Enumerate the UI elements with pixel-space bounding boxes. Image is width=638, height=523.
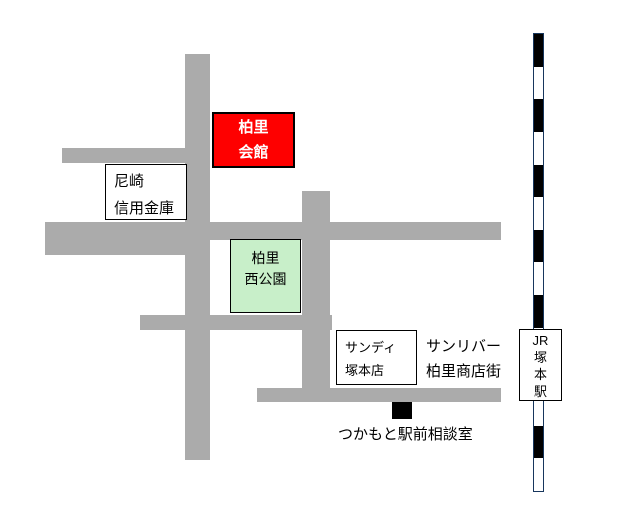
road-horizontal-bottom xyxy=(257,388,501,402)
railway-segment xyxy=(534,230,543,263)
sunriver-shotengai-label: サンリバー 柏里商店街 xyxy=(426,334,501,384)
kaikan-hall-label-line1: 柏里 xyxy=(238,115,268,140)
sandy-store-label-line1: サンディ xyxy=(345,336,416,359)
station-label-line1: JR xyxy=(520,332,561,349)
west-park-label-line1: 柏里 xyxy=(231,248,300,269)
kaikan-hall-label-line2: 会館 xyxy=(238,140,268,165)
jr-tsukamoto-station-box: JR 塚 本 駅 xyxy=(519,329,562,401)
railway-segment xyxy=(534,197,543,230)
railway-segment xyxy=(534,426,543,459)
sunriver-label-line1: サンリバー xyxy=(426,334,501,359)
sandy-store-box: サンディ 塚本店 xyxy=(336,330,417,385)
railway-segment xyxy=(534,295,543,328)
railway-segment xyxy=(534,458,543,491)
railway-segment xyxy=(534,262,543,295)
sandy-store-label-line2: 塚本店 xyxy=(345,359,416,382)
road-horizontal-top xyxy=(62,148,192,163)
railway-segment xyxy=(534,34,543,67)
shinkin-bank-box: 尼崎 信用金庫 xyxy=(105,164,187,220)
kaikan-hall-box: 柏里 会館 xyxy=(212,112,295,168)
station-label-line2: 塚 xyxy=(520,349,561,366)
railway-segment xyxy=(534,67,543,100)
shinkin-bank-label-line1: 尼崎 xyxy=(114,168,186,195)
road-horizontal-main-left xyxy=(45,222,210,255)
shinkin-bank-label-line2: 信用金庫 xyxy=(114,195,186,222)
railway-line xyxy=(533,33,544,492)
office-location-marker xyxy=(392,402,412,419)
station-label-line4: 駅 xyxy=(520,383,561,400)
west-park-box: 柏里 西公園 xyxy=(230,239,301,313)
railway-segment xyxy=(534,99,543,132)
office-label: つかもと駅前相談室 xyxy=(338,423,473,444)
access-map: 柏里 会館 尼崎 信用金庫 柏里 西公園 サンディ 塚本店 JR 塚 本 駅 サ… xyxy=(0,0,638,523)
station-label-line3: 本 xyxy=(520,366,561,383)
road-vertical-second xyxy=(302,191,330,402)
road-vertical-main xyxy=(185,54,210,460)
railway-segment xyxy=(534,165,543,198)
sunriver-label-line2: 柏里商店街 xyxy=(426,359,501,384)
road-horizontal-main-right xyxy=(200,222,501,240)
west-park-label-line2: 西公園 xyxy=(231,269,300,290)
railway-segment xyxy=(534,132,543,165)
